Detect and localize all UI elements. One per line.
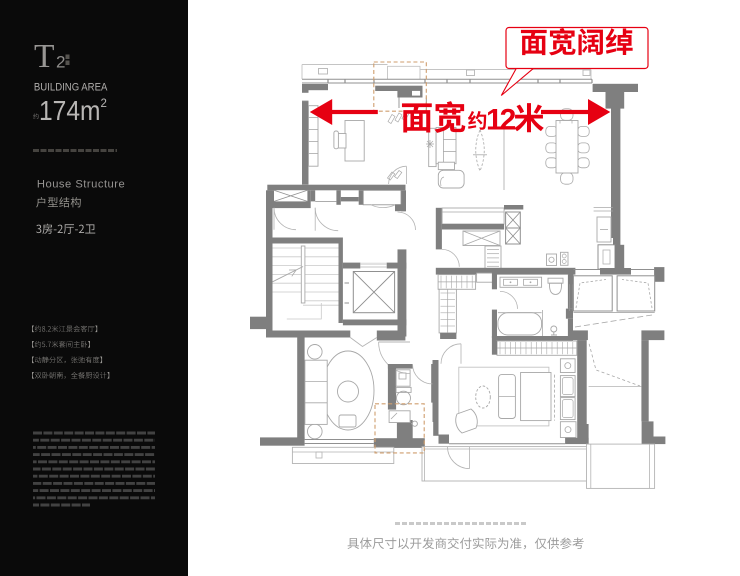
svg-text:174m: 174m (39, 95, 101, 126)
svg-text:T: T (34, 38, 54, 75)
svg-text:2: 2 (56, 53, 65, 72)
svg-text:House Structure: House Structure (37, 179, 125, 191)
svg-text:2: 2 (101, 98, 107, 110)
svg-text:12: 12 (486, 104, 516, 137)
svg-text:BUILDING AREA: BUILDING AREA (34, 82, 108, 94)
